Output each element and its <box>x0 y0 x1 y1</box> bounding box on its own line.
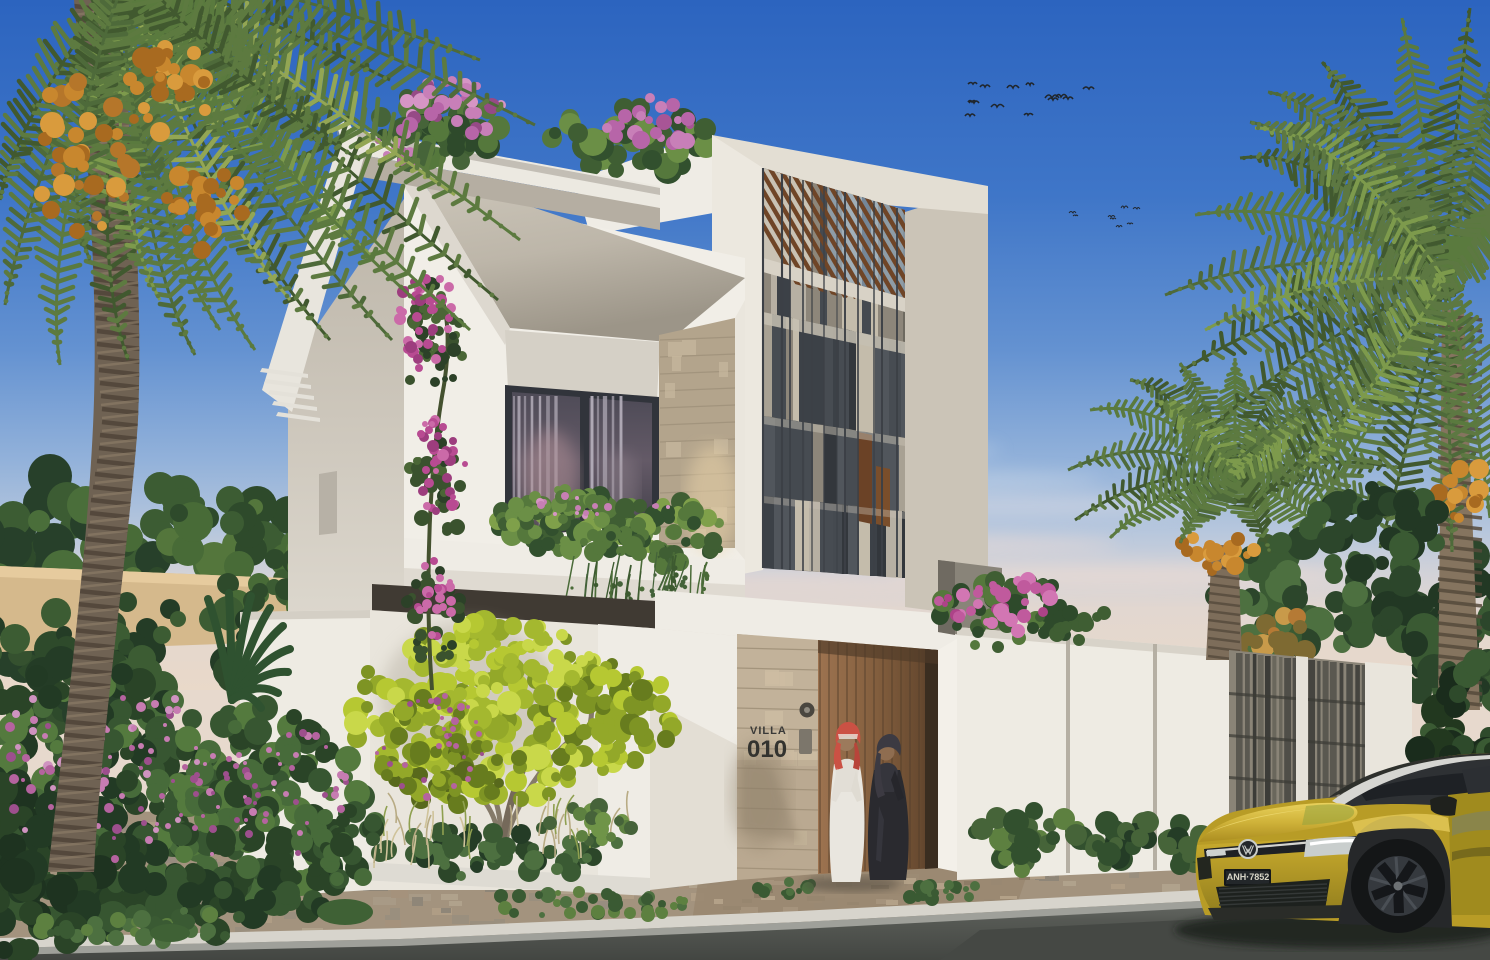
svg-text:010: 010 <box>747 736 787 763</box>
svg-text:ANH·7852: ANH·7852 <box>1227 872 1270 882</box>
